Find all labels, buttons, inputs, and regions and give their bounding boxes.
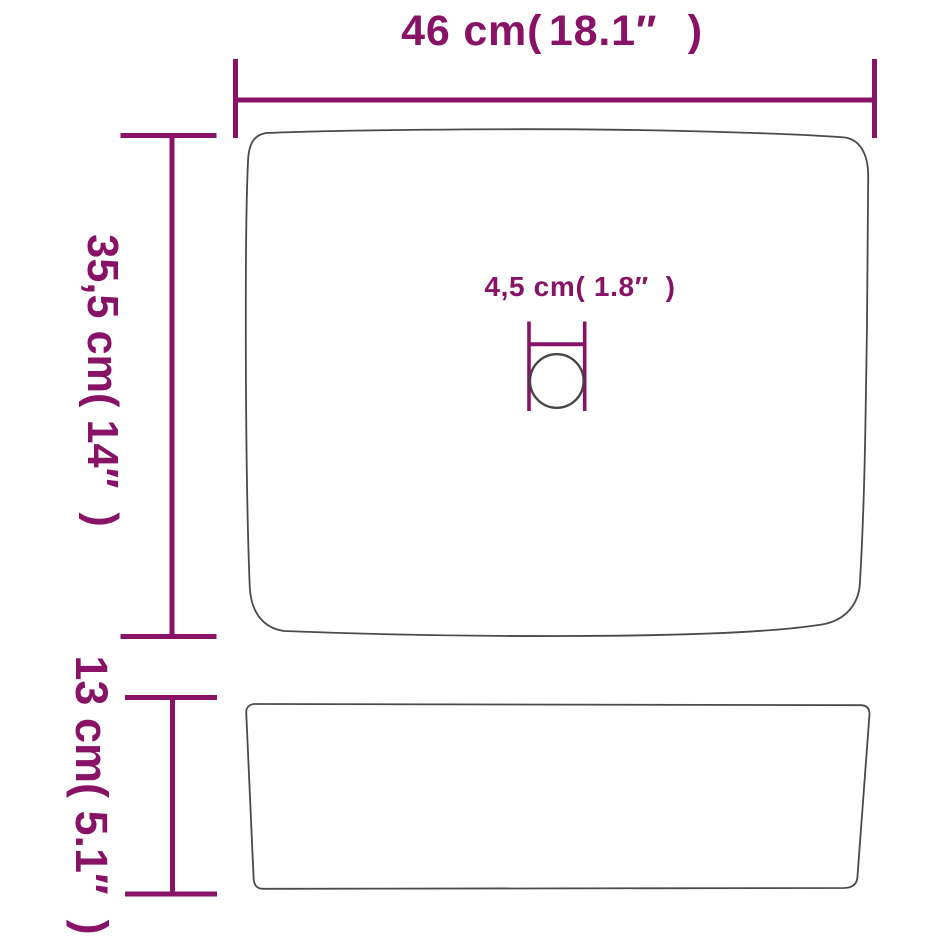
svg-text:35,5 cm( 14″ ): 35,5 cm( 14″ ) bbox=[78, 234, 126, 527]
svg-text:13 cm( 5.1″ ): 13 cm( 5.1″ ) bbox=[66, 655, 117, 934]
svg-text:4,5 cm( 1.8″ ): 4,5 cm( 1.8″ ) bbox=[484, 271, 675, 302]
